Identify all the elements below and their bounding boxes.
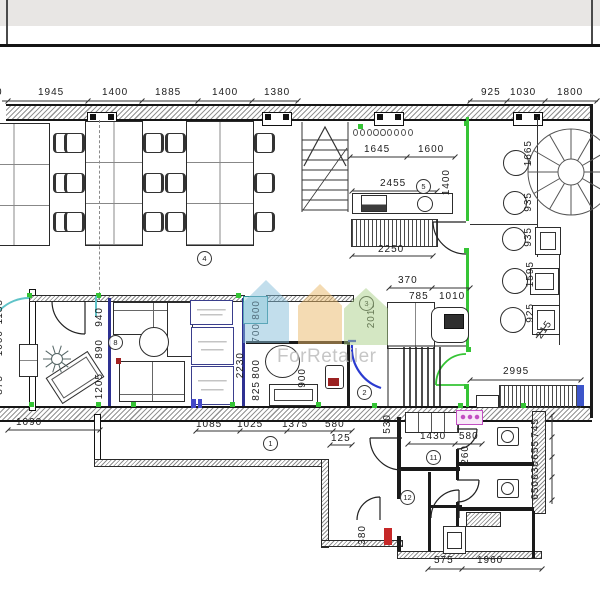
dim-label: 1595 <box>526 261 536 287</box>
dim-label: 1945 <box>38 88 64 98</box>
dim-label: 580 <box>325 420 345 430</box>
dim-label: 2455 <box>380 179 406 189</box>
door-arc-cyan <box>0 296 96 339</box>
dim-label: 1400 <box>442 169 452 195</box>
dim-label: 2995 <box>503 367 529 377</box>
dim-label: 1205 <box>95 373 105 399</box>
room-number: 4 <box>197 251 212 266</box>
dim-label: 1375 <box>282 420 308 430</box>
dim-label: 935 <box>524 227 534 247</box>
dim-label: 530 <box>383 414 393 434</box>
watermark-text: ForRetailer <box>277 346 376 368</box>
dim-label: 940 <box>95 307 105 327</box>
dim-label: 1960 <box>477 556 503 566</box>
room-number: 12 <box>400 490 415 505</box>
dim-label: 125 <box>331 434 351 444</box>
dim-label: 925 <box>481 88 501 98</box>
floor-plan: 0 1945 1400 1885 1400 1380 925 1030 1800… <box>0 0 600 600</box>
room-number: 8 <box>108 335 123 350</box>
room-number: 11 <box>426 450 441 465</box>
dim-label: 1185 <box>0 299 5 325</box>
dim-label: 1030 <box>510 88 536 98</box>
dim-label: 925 <box>526 303 536 323</box>
dim-label: 575 <box>434 556 454 566</box>
door-arc <box>52 222 479 520</box>
spiral-staircase <box>528 129 600 215</box>
dim-label: 900 <box>298 368 308 388</box>
staircase-top <box>302 122 348 212</box>
dim-label: 1085 <box>196 420 222 430</box>
dim-label: 1025 <box>237 420 263 430</box>
dim-label: 745 <box>531 418 541 438</box>
dim-label: 2230 <box>236 352 246 378</box>
dim-label: 655 <box>531 440 541 460</box>
dim-label: 1090 <box>16 418 42 428</box>
dim-label: 1600 <box>418 145 444 155</box>
dim-label: 1430 <box>420 432 446 442</box>
dim-label: 825 <box>252 381 262 401</box>
dim-label: 935 <box>524 192 534 212</box>
dim-label: 650 <box>531 480 541 500</box>
staircase-down <box>388 346 466 406</box>
dim-label: 890 <box>95 339 105 359</box>
dim-label: 1000 <box>0 330 5 356</box>
dim-label: 1400 <box>102 88 128 98</box>
plant <box>43 346 71 373</box>
dim-label: 1645 <box>364 145 390 155</box>
dim-label: 1400 <box>212 88 238 98</box>
room-number: 1 <box>263 436 278 451</box>
room-number: 2 <box>357 385 372 400</box>
dim-label: 260 <box>461 445 471 465</box>
dim-label: 580 <box>459 432 479 442</box>
dim-label: 630 <box>531 460 541 480</box>
dim-label: 380 <box>358 525 368 545</box>
dim-label: 1380 <box>264 88 290 98</box>
dim-label: 1885 <box>155 88 181 98</box>
dim-label: 1665 <box>524 140 534 166</box>
room-number: 5 <box>416 179 431 194</box>
dim-label: 1010 <box>439 292 465 302</box>
dim-label: 785 <box>409 292 429 302</box>
dim-label: 2250 <box>378 245 404 255</box>
dim-label: 1800 <box>557 88 583 98</box>
dim-label: 370 <box>398 276 418 286</box>
dim-label: 875 <box>0 375 5 395</box>
dim-label: 800 <box>252 359 262 379</box>
dim-label: 0 <box>0 88 3 98</box>
